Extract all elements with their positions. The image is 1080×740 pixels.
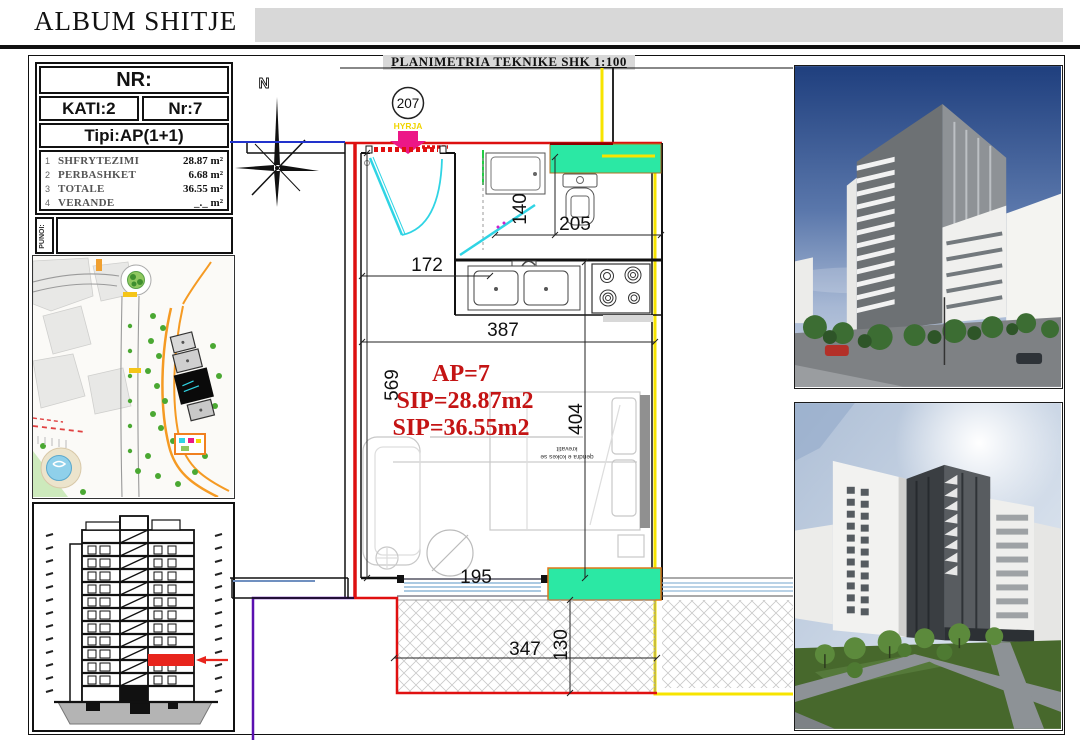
green-shaft-bottom	[548, 568, 661, 600]
building-section	[32, 502, 235, 732]
map-pool	[47, 456, 72, 481]
building-section-drawing	[34, 504, 233, 730]
utility-line-purple	[253, 598, 354, 740]
svg-text:qendra e kokes se: qendra e kokes se	[540, 453, 594, 460]
dim-347: 347	[509, 639, 541, 660]
dim-404: 404	[566, 403, 587, 435]
entry-door: HYRJA	[365, 121, 449, 235]
punoi-box: PUNOI:	[35, 217, 233, 254]
site-map	[32, 255, 235, 499]
kati-label: KATI:2	[39, 96, 139, 121]
neighbour-window-extension	[662, 578, 793, 688]
nightstand	[618, 535, 644, 557]
svg-text:207: 207	[397, 96, 420, 111]
entry-label: HYRJA	[394, 121, 423, 131]
label-sip1: SIP=28.87m2	[396, 388, 533, 414]
stove	[592, 264, 650, 313]
red-car	[825, 345, 849, 356]
building-render-photo-2	[794, 402, 1063, 731]
table-row: 4 VERANDE _._ m²	[45, 196, 223, 210]
album-page: ALBUM SHITJE NR: KATI:2 Nr:7 Tipi:AP(1+1…	[0, 0, 1080, 740]
site-map-drawing	[33, 256, 233, 497]
dim-195: 195	[460, 567, 492, 588]
table-row: 3 TOTALE 36.55 m²	[45, 182, 223, 196]
table-row: 2 PERBASHKET 6.68 m²	[45, 168, 223, 182]
svg-text:krevatit: krevatit	[556, 445, 577, 452]
floor-plan: N 207	[230, 55, 795, 740]
dark-car	[1016, 353, 1042, 364]
unit-circle-label: 207	[393, 88, 424, 119]
apartment-info-card: NR: KATI:2 Nr:7 Tipi:AP(1+1) 1 SHFRYTEZI…	[35, 62, 233, 215]
dim-172: 172	[411, 255, 443, 276]
header-strip	[255, 8, 1063, 42]
page-title: ALBUM SHITJE	[34, 6, 237, 37]
highlighted-floor	[148, 654, 194, 666]
dim-205: 205	[559, 214, 591, 235]
kitchen-sink	[468, 261, 580, 310]
label-ap: AP=7	[432, 361, 490, 387]
area-table: 1 SHFRYTEZIMI 28.87 m² 2 PERBASHKET 6.68…	[39, 150, 229, 211]
sofa	[363, 437, 420, 565]
punoi-label: PUNOI:	[39, 224, 46, 249]
dim-130: 130	[551, 629, 572, 661]
unit-nr-label: Nr:7	[142, 96, 229, 121]
header-rule	[0, 45, 1080, 49]
nr-label: NR:	[39, 66, 229, 94]
building-render-photo-1	[794, 65, 1063, 389]
green-shaft-top	[550, 144, 661, 173]
map-orange-structure	[175, 434, 205, 454]
dim-387: 387	[487, 320, 519, 341]
kitchen	[455, 261, 662, 322]
bed-note: qendra e kokes se krevatit	[540, 445, 594, 460]
tipi-label: Tipi:AP(1+1)	[39, 123, 229, 148]
side-table	[376, 547, 398, 569]
svg-text:N: N	[259, 75, 270, 92]
label-sip2: SIP=36.55m2	[392, 415, 529, 441]
table-row: 1 SHFRYTEZIMI 28.87 m²	[45, 154, 223, 168]
dim-140: 140	[510, 193, 531, 225]
punoi-empty-field	[56, 217, 233, 254]
